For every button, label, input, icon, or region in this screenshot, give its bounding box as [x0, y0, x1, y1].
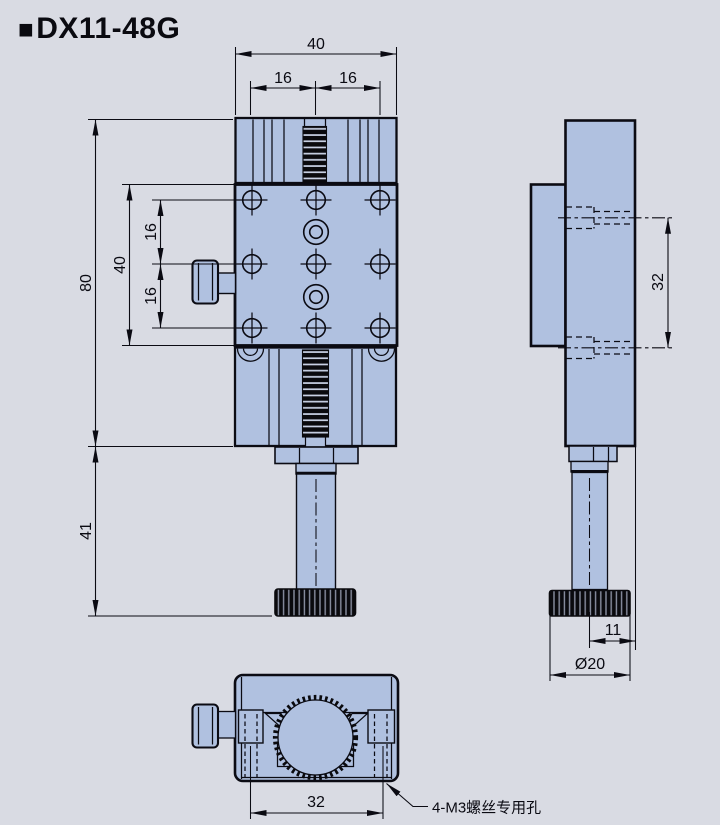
side-view — [531, 121, 672, 617]
clamp-knob-shaft-bottom — [218, 712, 236, 739]
dim-total-height: 80 — [78, 274, 95, 292]
clamp-knob-bottom — [193, 705, 236, 748]
clamp-knob-shaft — [217, 273, 236, 294]
body-side-profile — [566, 121, 636, 447]
dim-total-width: 40 — [307, 36, 325, 53]
technical-drawing: 40 16 16 80 41 40 16 16 — [0, 0, 720, 825]
callout-leader — [387, 784, 429, 807]
ext-lines-top — [236, 47, 397, 115]
lead-screw-thread — [303, 350, 329, 437]
bottom-view — [193, 675, 399, 781]
clamp-knob-cap — [193, 261, 219, 304]
dim-knob-diameter: Ø20 — [575, 656, 605, 673]
screw-slot-right — [368, 710, 395, 743]
dim-top-pitch-right: 16 — [339, 70, 357, 87]
dim-hole-pitch-lower: 16 — [143, 287, 160, 305]
dim-side-hole-span: 32 — [650, 273, 667, 291]
front-view — [193, 118, 398, 616]
dim-plate-height: 40 — [112, 256, 129, 274]
clamp-knob-front — [193, 261, 236, 304]
top-adjust-screw-thread — [303, 127, 327, 184]
screw-slot-left — [239, 710, 264, 743]
dim-top-pitch-left: 16 — [274, 70, 292, 87]
lead-screw-collar — [306, 437, 326, 447]
clamp-knob-cap-bottom — [193, 705, 219, 748]
dim-knob-offset: 11 — [605, 622, 622, 639]
drawing-canvas: ■ DX11-48G — [0, 0, 720, 825]
plate-side-profile — [531, 185, 566, 347]
drive-knob-front — [275, 589, 356, 616]
knob-bottom-gear — [278, 700, 353, 775]
neck-step — [275, 447, 358, 464]
dim-hole-pitch-upper: 16 — [143, 223, 160, 241]
callout-m3-holes: 4-M3螺丝专用孔 — [432, 800, 541, 817]
dim-slot-span: 32 — [307, 794, 325, 811]
dim-shaft-length: 41 — [78, 522, 95, 540]
